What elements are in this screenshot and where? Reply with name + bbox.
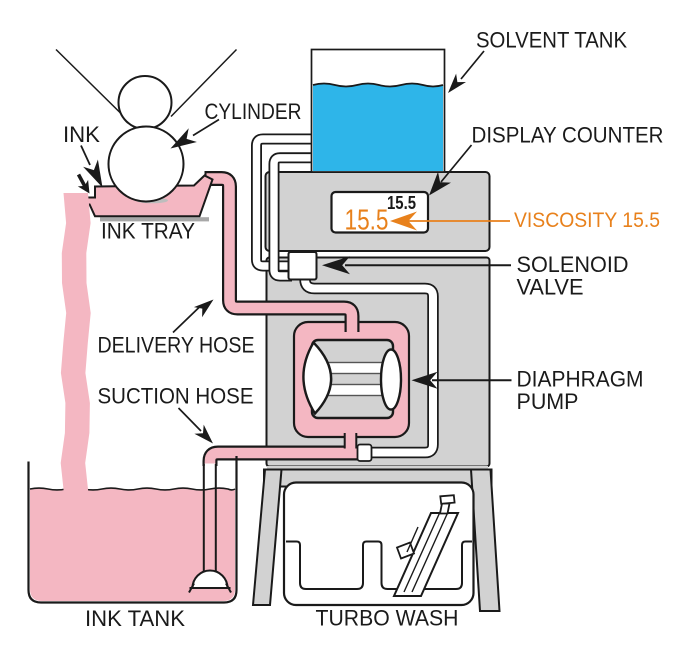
svg-text:SUCTION HOSE: SUCTION HOSE [98, 384, 254, 409]
svg-text:15.5: 15.5 [345, 205, 389, 237]
svg-text:15.5: 15.5 [387, 193, 416, 213]
svg-text:DISPLAY COUNTER: DISPLAY COUNTER [472, 123, 664, 148]
svg-text:SOLVENT TANK: SOLVENT TANK [476, 28, 627, 53]
svg-text:DIAPHRAGM: DIAPHRAGM [517, 367, 644, 392]
svg-text:DELIVERY HOSE: DELIVERY HOSE [98, 333, 255, 358]
svg-text:INK TANK: INK TANK [85, 606, 185, 631]
svg-text:VALVE: VALVE [517, 275, 584, 300]
svg-text:INK: INK [63, 122, 100, 147]
svg-text:SOLENOID: SOLENOID [517, 252, 629, 277]
svg-text:VISCOSITY 15.5: VISCOSITY 15.5 [514, 209, 660, 232]
svg-text:INK TRAY: INK TRAY [101, 219, 195, 244]
svg-text:PUMP: PUMP [517, 389, 579, 414]
svg-text:TURBO WASH: TURBO WASH [316, 606, 459, 631]
